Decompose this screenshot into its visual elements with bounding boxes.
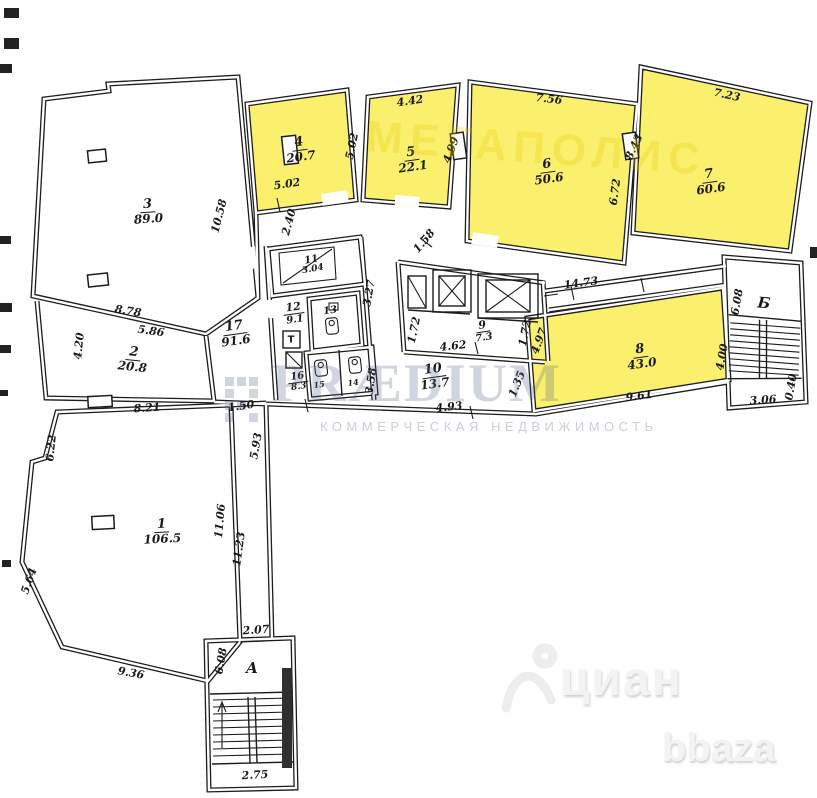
room-4-label: 4 20.7 [284, 134, 317, 166]
room-8-label: 8 43.0 [625, 341, 658, 373]
shaft-strip [282, 668, 292, 768]
room-17-label: 17 91.6 [219, 318, 252, 350]
stair-b-letter: Б [757, 293, 771, 312]
room-2-label: 2 20.8 [117, 344, 149, 375]
room-11-label: 11 3.04 [299, 251, 325, 278]
room-1-label: 1 106.5 [142, 517, 181, 547]
t-box-letter: Т [288, 335, 295, 346]
watermark-bbaza: bbaza [662, 726, 775, 771]
watermark-brand-subtitle: КОММЕРЧЕСКАЯ НЕДВИЖИМОСТЬ [320, 419, 658, 434]
room-9-label: 9 7.3 [473, 317, 494, 344]
room-area: 89.0 [133, 212, 163, 227]
cian-logo [506, 648, 553, 708]
stair-a-letter: А [246, 659, 258, 677]
dim-room1-left: 6.22 [43, 434, 59, 462]
room-13-label: 13 [319, 302, 341, 318]
dim-stair-b-bottom: 3.06 [749, 393, 777, 408]
watermark-brand: PRÆDIUM [272, 352, 562, 414]
dim-stair-a-top: 2.07 [242, 623, 270, 638]
watermark-cian: циан [560, 652, 683, 707]
dim-stair-a-bottom: 2.75 [241, 768, 268, 782]
stair-direction-arrow [218, 702, 226, 748]
staircase-b [726, 315, 803, 382]
dim-room1-top: 8.21 [133, 401, 161, 416]
staircase-a [210, 668, 294, 768]
floor-plan-page: 3 89.0 4 20.7 5 22.1 6 50.6 7 60.6 2 20.… [0, 0, 817, 798]
room-3-label: 3 89.0 [132, 197, 163, 227]
toilet-icon [325, 317, 339, 334]
room-12-label: 12 9.1 [282, 299, 307, 327]
dim-room2-left: 4.20 [71, 332, 87, 360]
